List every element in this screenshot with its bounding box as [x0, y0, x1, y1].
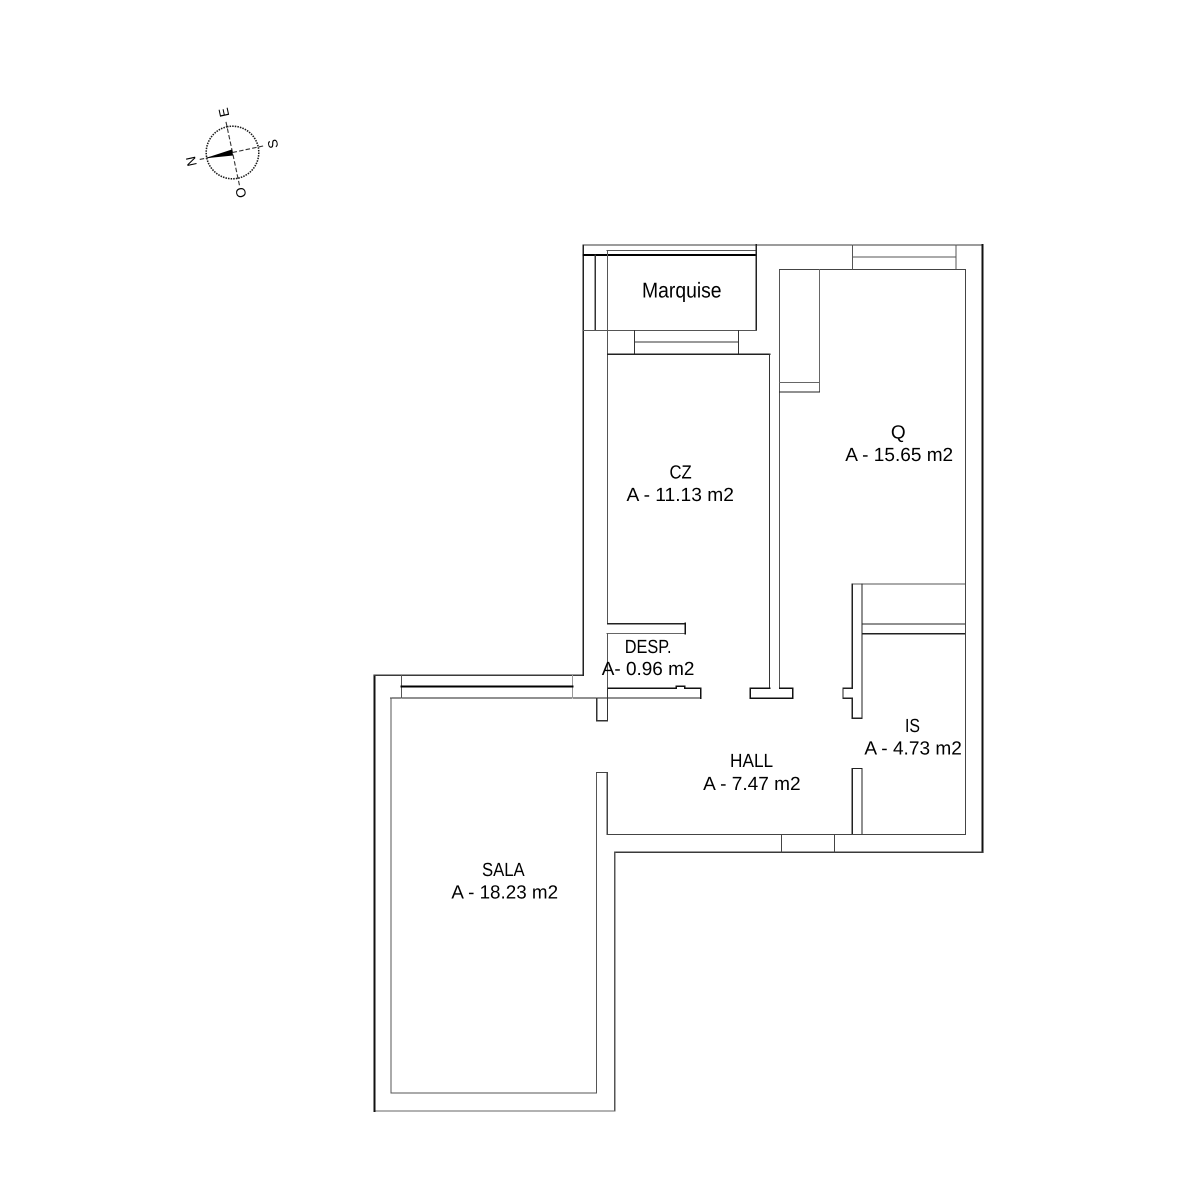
svg-text:A - 15.65 m2: A - 15.65 m2 — [845, 445, 953, 466]
svg-text:O: O — [233, 186, 250, 199]
svg-text:A - 18.23 m2: A - 18.23 m2 — [451, 883, 558, 904]
svg-text:N: N — [183, 155, 200, 168]
svg-text:HALL: HALL — [730, 751, 773, 772]
svg-text:IS: IS — [905, 716, 920, 737]
svg-text:Q: Q — [891, 423, 906, 444]
svg-text:DESP.: DESP. — [625, 637, 672, 658]
svg-text:A- 0.96 m2: A- 0.96 m2 — [602, 659, 695, 680]
svg-text:A - 4.73 m2: A - 4.73 m2 — [864, 738, 962, 759]
svg-text:Marquise: Marquise — [642, 278, 722, 302]
svg-text:E: E — [216, 106, 233, 118]
svg-text:CZ: CZ — [670, 463, 693, 484]
svg-text:S: S — [265, 138, 282, 150]
svg-text:SALA: SALA — [482, 860, 525, 881]
svg-text:A - 7.47 m2: A - 7.47 m2 — [703, 774, 801, 795]
svg-text:A - 11.13 m2: A - 11.13 m2 — [627, 485, 734, 506]
